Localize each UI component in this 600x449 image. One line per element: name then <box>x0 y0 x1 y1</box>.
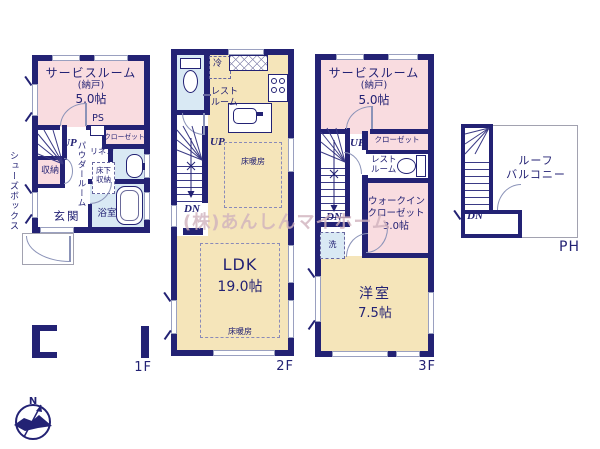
window <box>32 84 38 116</box>
f1-bathroom-label: 浴室 <box>94 208 120 219</box>
f1-ps-label: PS <box>86 113 110 124</box>
wall-segment <box>362 253 428 258</box>
bathtub <box>116 186 143 225</box>
ph-roof-balcony-label-line1: ルーフ <box>508 155 564 168</box>
ph-roof-balcony-label-line2: バルコニー <box>504 169 568 182</box>
fridge-space: 冷 <box>209 56 231 79</box>
laundry-space: 洗 <box>320 232 345 259</box>
wall-segment <box>38 184 65 188</box>
stairs-arrow <box>326 136 342 214</box>
f1-powder-room-label: パウダールーム <box>73 138 86 210</box>
toilet-bowl <box>397 158 416 174</box>
f3-western-room-label: 洋室 <box>356 286 394 303</box>
f2-ldk-label: LDK <box>211 256 269 275</box>
wall-segment <box>366 178 428 183</box>
fridge-label: 冷 <box>210 59 230 70</box>
toilet-tank <box>416 155 426 177</box>
f3-service-room-label: サービスルーム <box>324 66 424 80</box>
stairs-steps <box>465 156 489 210</box>
ph-floor-label: PH <box>548 239 580 255</box>
label-leader-line <box>203 94 211 96</box>
bathtub-inner <box>120 190 139 221</box>
toilet-tank <box>180 58 201 69</box>
wall-segment <box>32 55 150 61</box>
f2-ldk-size-label: 19.0帖 <box>206 279 274 296</box>
site-mark <box>32 325 57 331</box>
window <box>144 192 150 220</box>
window <box>288 300 294 338</box>
watermark: (株)あんしんマイホーム <box>183 208 403 234</box>
compass-north-label: N <box>29 396 37 407</box>
laundry-label: 洗 <box>321 240 344 249</box>
f2-floor-heating-label: 床暖房 <box>233 157 273 166</box>
faucet <box>142 163 145 170</box>
wall-segment <box>366 150 428 154</box>
washbasin <box>126 154 143 178</box>
f2-floor-label: 2F <box>266 359 294 374</box>
door-leaf <box>203 113 205 135</box>
window <box>32 192 38 218</box>
kitchen-sink <box>233 108 257 124</box>
kitchen-faucet <box>256 112 263 116</box>
site-mark <box>32 352 57 358</box>
window <box>52 55 80 61</box>
wall-segment <box>370 129 428 134</box>
stove-burner <box>279 87 285 93</box>
f3-service-room-size: 5.0帖 <box>349 93 399 107</box>
f1-service-room-sub: (納戸) <box>61 80 121 91</box>
f3-closet-label: クローゼット <box>366 136 428 145</box>
f2-up-label: UP <box>210 136 225 148</box>
window <box>388 54 418 60</box>
f1-shoes-box-label: シューズボックス <box>5 148 18 234</box>
door-leaf <box>69 236 71 262</box>
f3-floor-label: 3F <box>408 359 436 374</box>
f1-entrance-label: 玄関 <box>50 210 84 224</box>
wall-segment <box>202 126 208 203</box>
window <box>288 245 294 283</box>
f1-service-room-size: 5.0帖 <box>66 92 116 106</box>
window <box>332 351 388 357</box>
f3-western-room-size: 7.5帖 <box>352 306 398 321</box>
door-leaf <box>371 106 373 129</box>
f1-floor-label: 1F <box>124 360 152 375</box>
ph-dn-label: DN <box>467 210 483 222</box>
floorplan-canvas: 床下収納 サービスルーム (納戸) 5.0帖 PS クローゼット UP パウダー… <box>0 0 600 449</box>
stairs-winder <box>38 130 63 164</box>
stove-burner <box>271 78 277 84</box>
stove-burner <box>279 78 285 84</box>
window <box>315 276 321 322</box>
f3-wic-label-line1: ウォークイン <box>368 196 424 207</box>
window <box>171 205 177 227</box>
floor-heating-zone <box>224 142 282 208</box>
stairs-arrow <box>183 134 199 200</box>
kitchen-cabinet <box>229 55 268 71</box>
stairs-winder <box>465 128 489 154</box>
window <box>171 300 177 334</box>
stove-burner <box>271 87 277 93</box>
window <box>396 351 420 357</box>
window <box>288 138 294 172</box>
wall-segment <box>88 204 92 227</box>
f1-closet-label: クローゼット <box>104 133 144 141</box>
f3-up-label: UP <box>350 137 365 149</box>
window <box>213 350 275 356</box>
f1-service-room-label: サービスルーム <box>41 66 141 80</box>
f2-rest-room-label: レストルーム <box>211 87 240 108</box>
f1-linen-label: リネン <box>88 147 116 156</box>
ps-shaft <box>90 125 105 136</box>
f3-service-room-sub: (納戸) <box>344 80 404 91</box>
f1-storage-label: 収納 <box>40 166 60 177</box>
f3-western-room <box>321 256 428 351</box>
window <box>336 54 364 60</box>
compass-north-icon: N <box>8 392 60 446</box>
site-mark <box>141 326 149 358</box>
f2-floor-heating-label2: 床暖房 <box>220 327 260 336</box>
f3-rest-room-label: レストルーム <box>371 155 398 175</box>
window <box>94 55 128 61</box>
window <box>428 292 434 334</box>
toilet-bowl <box>183 70 198 93</box>
